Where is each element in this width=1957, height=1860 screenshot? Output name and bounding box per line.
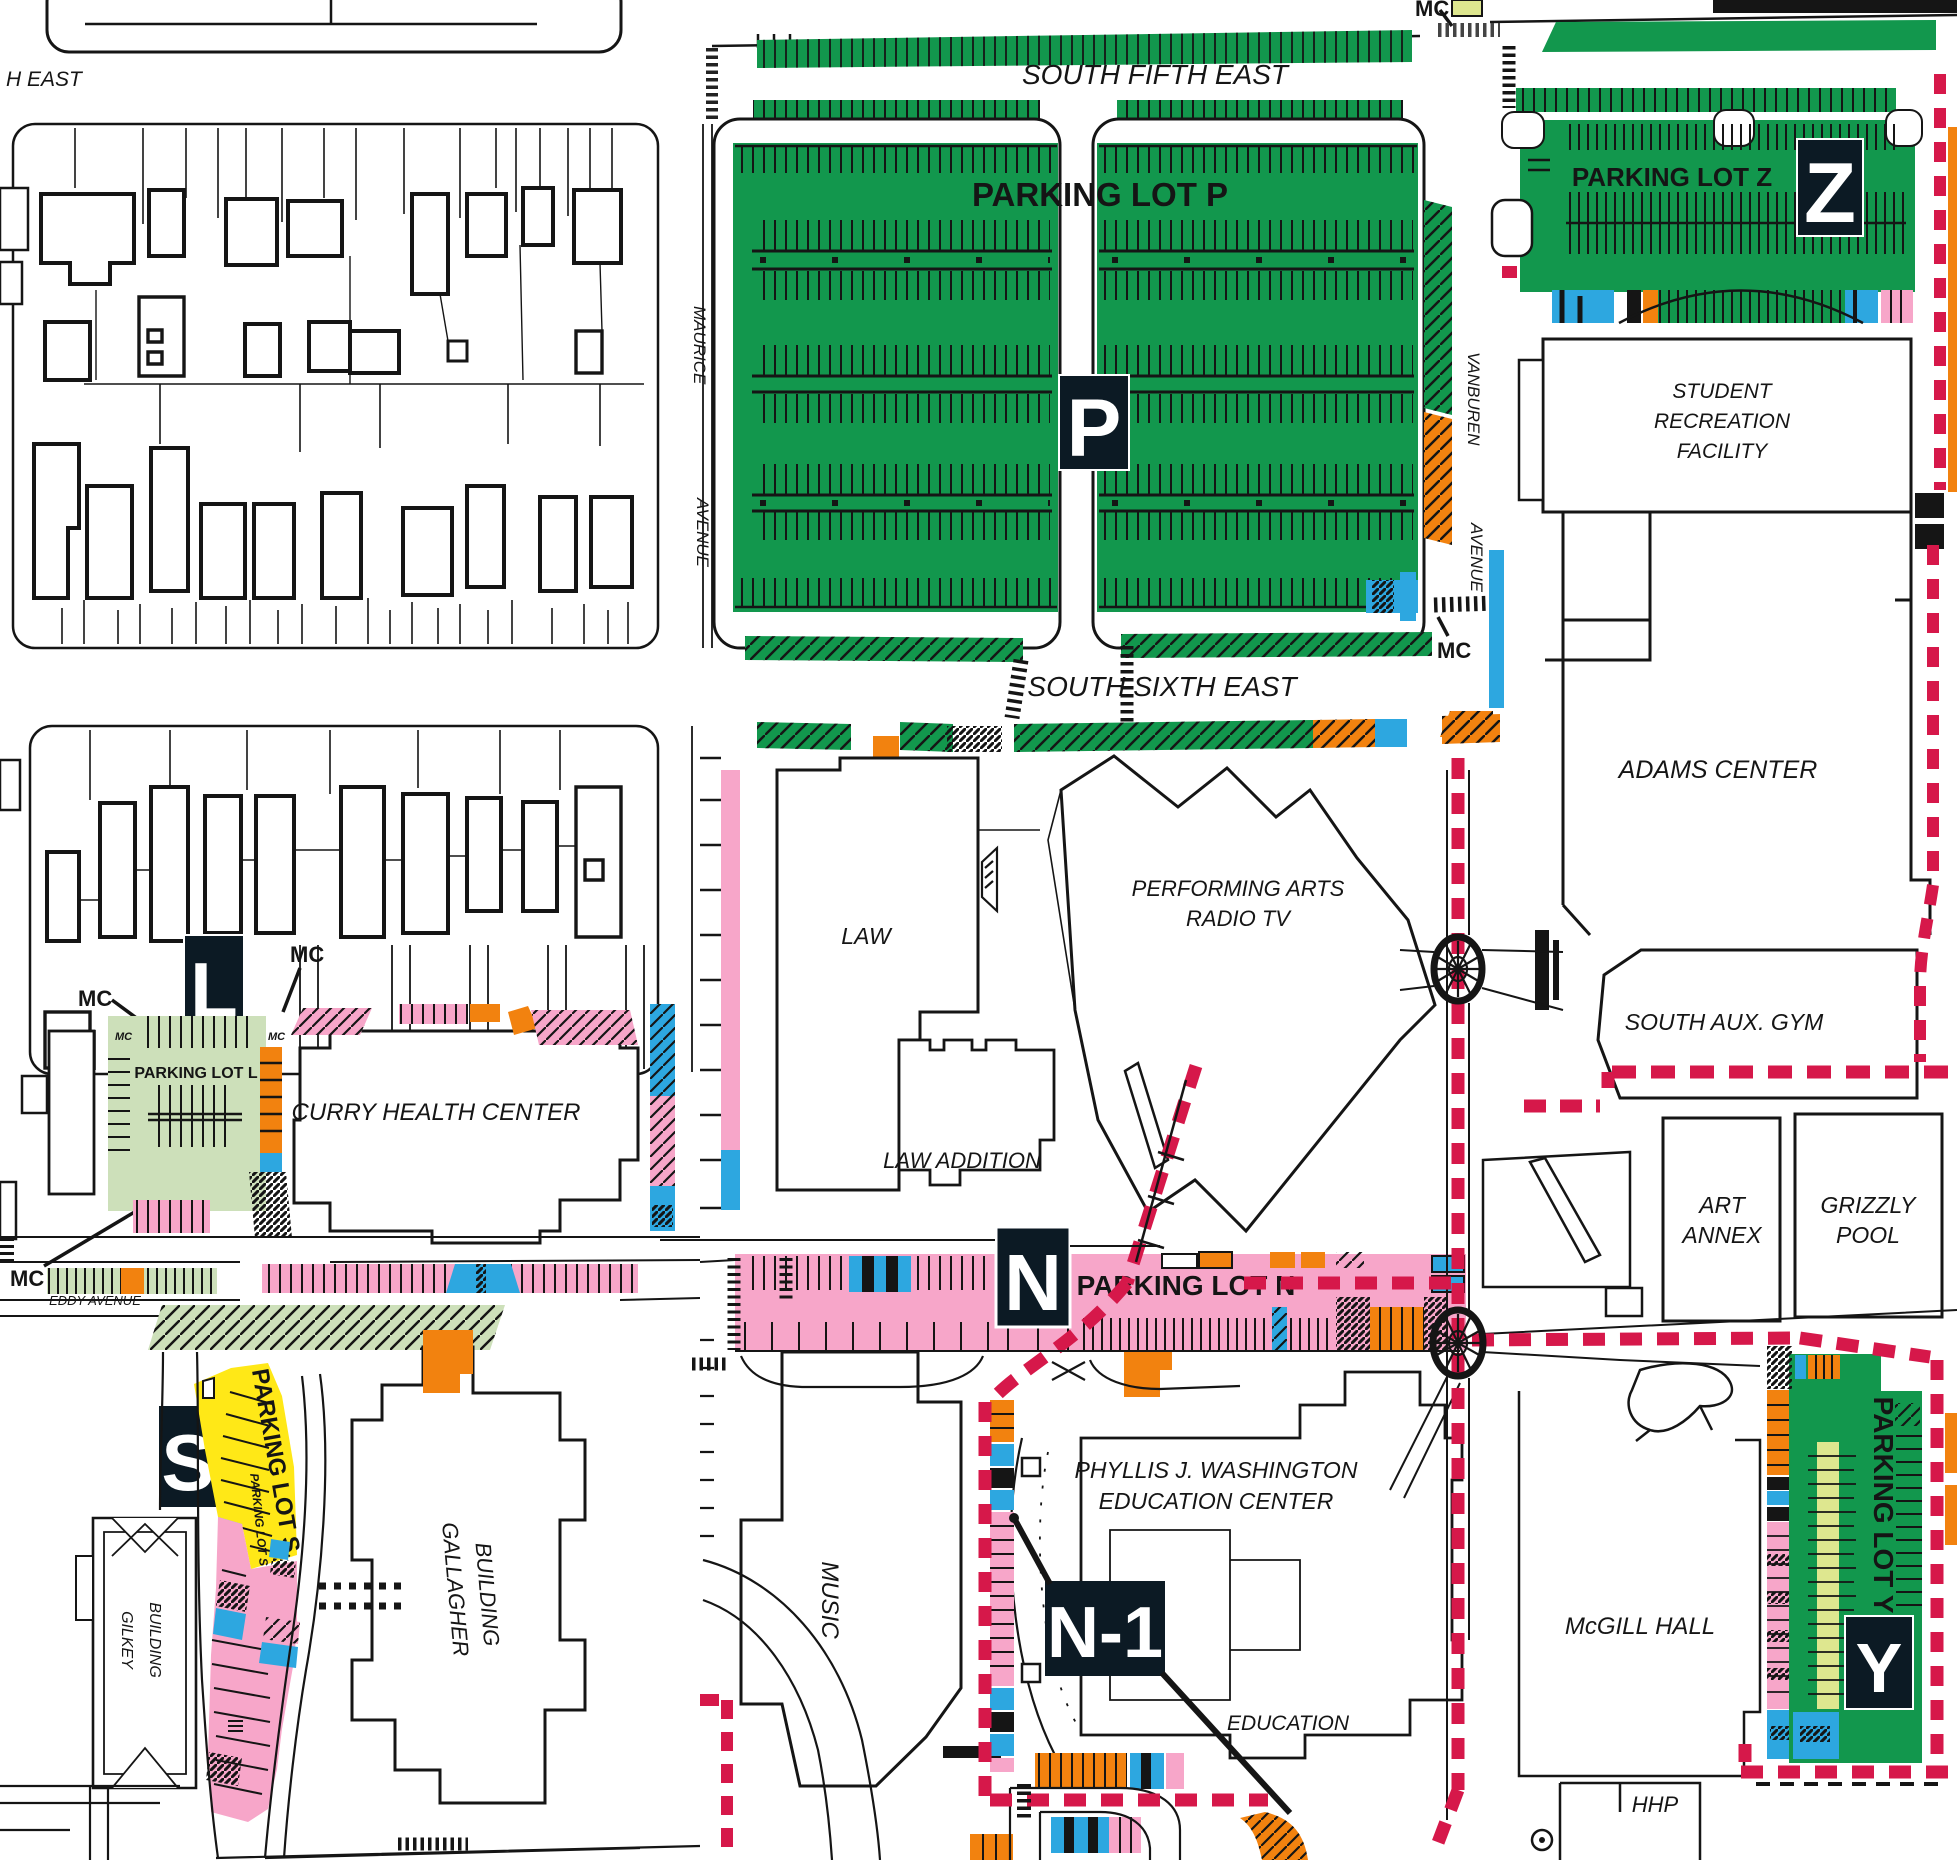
svg-text:ADAMS CENTER: ADAMS CENTER [1617, 756, 1818, 784]
svg-text:MAURICE: MAURICE [690, 306, 709, 385]
svg-text:RECREATION: RECREATION [1654, 410, 1791, 433]
svg-text:RADIO TV: RADIO TV [1186, 906, 1292, 931]
svg-text:P: P [1067, 383, 1122, 474]
svg-text:PARKING LOT L: PARKING LOT L [134, 1065, 257, 1082]
svg-text:EDUCATION CENTER: EDUCATION CENTER [1099, 1488, 1334, 1514]
svg-text:H EAST: H EAST [6, 68, 84, 91]
svg-text:GRIZZLY: GRIZZLY [1820, 1192, 1917, 1218]
svg-text:AVENUE: AVENUE [1467, 522, 1486, 593]
svg-text:MC: MC [268, 1031, 286, 1043]
svg-text:MC: MC [78, 986, 112, 1011]
svg-text:EDUCATION: EDUCATION [1227, 1712, 1350, 1735]
svg-text:SOUTH SIXTH EAST: SOUTH SIXTH EAST [1027, 671, 1298, 702]
svg-text:POOL: POOL [1836, 1222, 1900, 1248]
svg-text:FACILITY: FACILITY [1677, 440, 1770, 463]
svg-text:HHP: HHP [1632, 1792, 1679, 1817]
svg-text:N-1: N-1 [1047, 1593, 1163, 1673]
svg-text:PARKING LOT Y: PARKING LOT Y [1868, 1397, 1899, 1614]
svg-text:SOUTH FIFTH EAST: SOUTH FIFTH EAST [1022, 59, 1290, 90]
svg-text:Y: Y [1856, 1629, 1903, 1707]
svg-text:LAW: LAW [841, 923, 893, 949]
svg-text:N: N [1004, 1238, 1062, 1327]
svg-text:PERFORMING ARTS: PERFORMING ARTS [1132, 876, 1345, 901]
svg-text:PARKING LOT P: PARKING LOT P [972, 176, 1228, 213]
svg-text:GILKEY: GILKEY [118, 1611, 135, 1670]
svg-text:VANBUREN: VANBUREN [1464, 352, 1483, 446]
svg-text:McGILL HALL: McGILL HALL [1565, 1613, 1715, 1640]
svg-text:ART: ART [1697, 1192, 1747, 1218]
svg-text:MC: MC [290, 942, 324, 967]
svg-text:PARKING LOT Z: PARKING LOT Z [1572, 162, 1772, 192]
svg-text:MUSIC: MUSIC [816, 1561, 843, 1639]
svg-text:PHYLLIS J. WASHINGTON: PHYLLIS J. WASHINGTON [1075, 1457, 1358, 1483]
svg-text:CURRY HEALTH CENTER: CURRY HEALTH CENTER [292, 1099, 581, 1126]
svg-text:MC: MC [1437, 638, 1471, 663]
svg-text:BUILDING: BUILDING [146, 1602, 163, 1678]
svg-text:MC: MC [115, 1031, 133, 1043]
svg-text:MC: MC [10, 1266, 44, 1291]
svg-text:ANNEX: ANNEX [1680, 1222, 1763, 1248]
svg-text:Z: Z [1804, 146, 1856, 241]
svg-text:STUDENT: STUDENT [1672, 380, 1773, 403]
svg-text:SOUTH AUX. GYM: SOUTH AUX. GYM [1625, 1009, 1824, 1035]
svg-text:LAW ADDITION: LAW ADDITION [883, 1148, 1041, 1173]
